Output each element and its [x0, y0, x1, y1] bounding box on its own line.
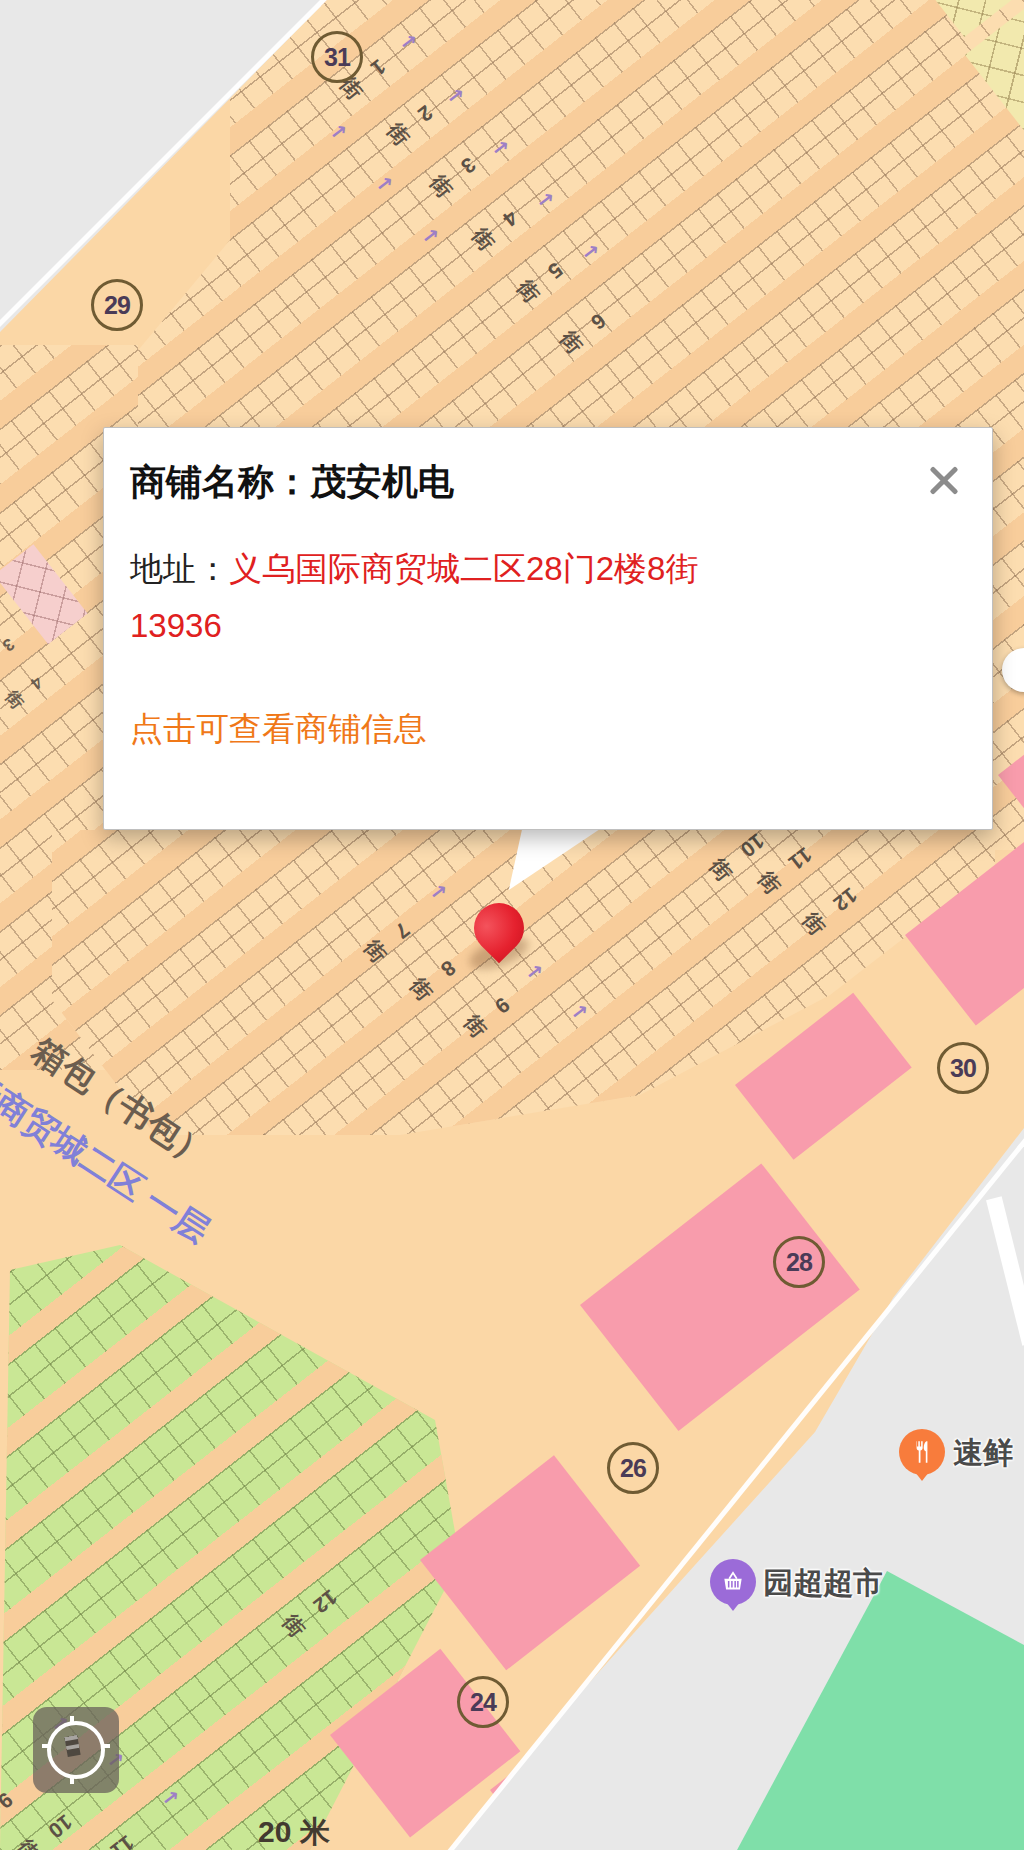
street-arrow-icon: ↗	[525, 959, 545, 985]
street-arrow-icon: ↗	[375, 171, 395, 197]
gate-circle-26[interactable]: 26	[607, 1442, 659, 1494]
gate-number: 24	[470, 1688, 496, 1717]
street-arrow-icon: ↗	[581, 239, 601, 265]
crosshair-icon	[47, 1721, 105, 1779]
pink-block	[490, 1679, 724, 1850]
shop-address: 地址：义乌国际商贸城二区28门2楼8街13936	[130, 541, 705, 655]
map-screen: 1街 2街 3街 4街 5街 6街 3街 4街 7街 8街 9街 10街 11街…	[0, 0, 1024, 1850]
gate-circle-30[interactable]: 30	[937, 1042, 989, 1094]
restaurant-poi-label[interactable]: 速鲜	[953, 1433, 1024, 1474]
shop-name-title: 商铺名称：茂安机电	[130, 458, 966, 507]
shopping-basket-icon	[720, 1569, 746, 1595]
gate-circle-31[interactable]: 31	[311, 31, 363, 83]
locate-button[interactable]	[33, 1707, 119, 1793]
gate-circle-28[interactable]: 28	[773, 1236, 825, 1288]
street-arrow-icon: ↗	[429, 879, 449, 905]
street-arrow-icon: ↗	[161, 1785, 181, 1811]
supermarket-poi-label[interactable]: 园超超市	[763, 1563, 883, 1604]
street-arrow-icon: ↗	[399, 29, 419, 55]
street-arrow-icon: ↗	[421, 223, 441, 249]
close-icon[interactable]	[922, 458, 966, 502]
pink-block	[420, 1455, 640, 1670]
view-shop-info-link[interactable]: 点击可查看商铺信息	[130, 707, 966, 752]
supermarket-poi-marker[interactable]	[710, 1559, 756, 1605]
restaurant-poi-marker[interactable]	[899, 1429, 945, 1475]
street-arrow-icon: ↗	[329, 119, 349, 145]
street-arrow-icon: ↗	[570, 999, 590, 1025]
gate-number: 31	[324, 43, 350, 72]
address-label: 地址：	[130, 550, 229, 587]
street-arrow-icon: ↗	[491, 135, 511, 161]
gate-circle-29[interactable]: 29	[91, 279, 143, 331]
gate-number: 29	[104, 291, 130, 320]
shop-info-popup[interactable]: 商铺名称：茂安机电 地址：义乌国际商贸城二区28门2楼8街13936 点击可查看…	[103, 427, 993, 830]
street-arrow-icon: ↗	[536, 187, 556, 213]
map-scale-label: 20 米	[258, 1812, 330, 1850]
outside-road	[986, 1196, 1024, 1345]
gate-number: 30	[950, 1054, 976, 1083]
gate-number: 28	[786, 1248, 812, 1277]
street-arrow-icon: ↗	[446, 83, 466, 109]
gate-number: 26	[620, 1454, 646, 1483]
fork-knife-icon	[909, 1439, 935, 1465]
gate-circle-24[interactable]: 24	[457, 1676, 509, 1728]
